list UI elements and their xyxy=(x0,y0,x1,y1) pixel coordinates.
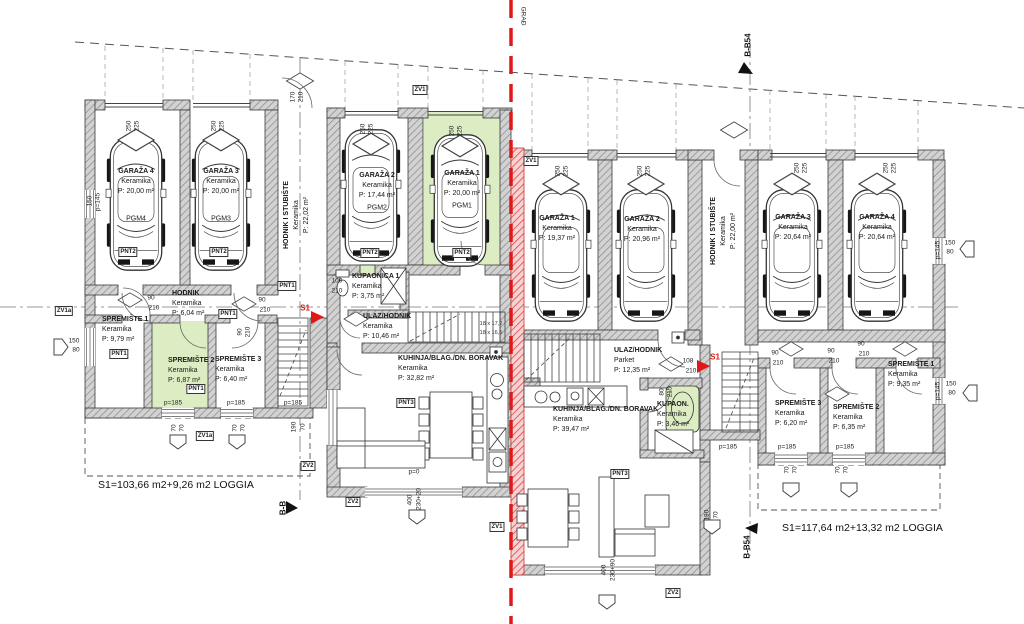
floor-plan: GARAŽA 4 Keramika P: 20,00 m² GARAŽA 3 K… xyxy=(0,0,1024,624)
plan-drawing xyxy=(0,0,1024,624)
